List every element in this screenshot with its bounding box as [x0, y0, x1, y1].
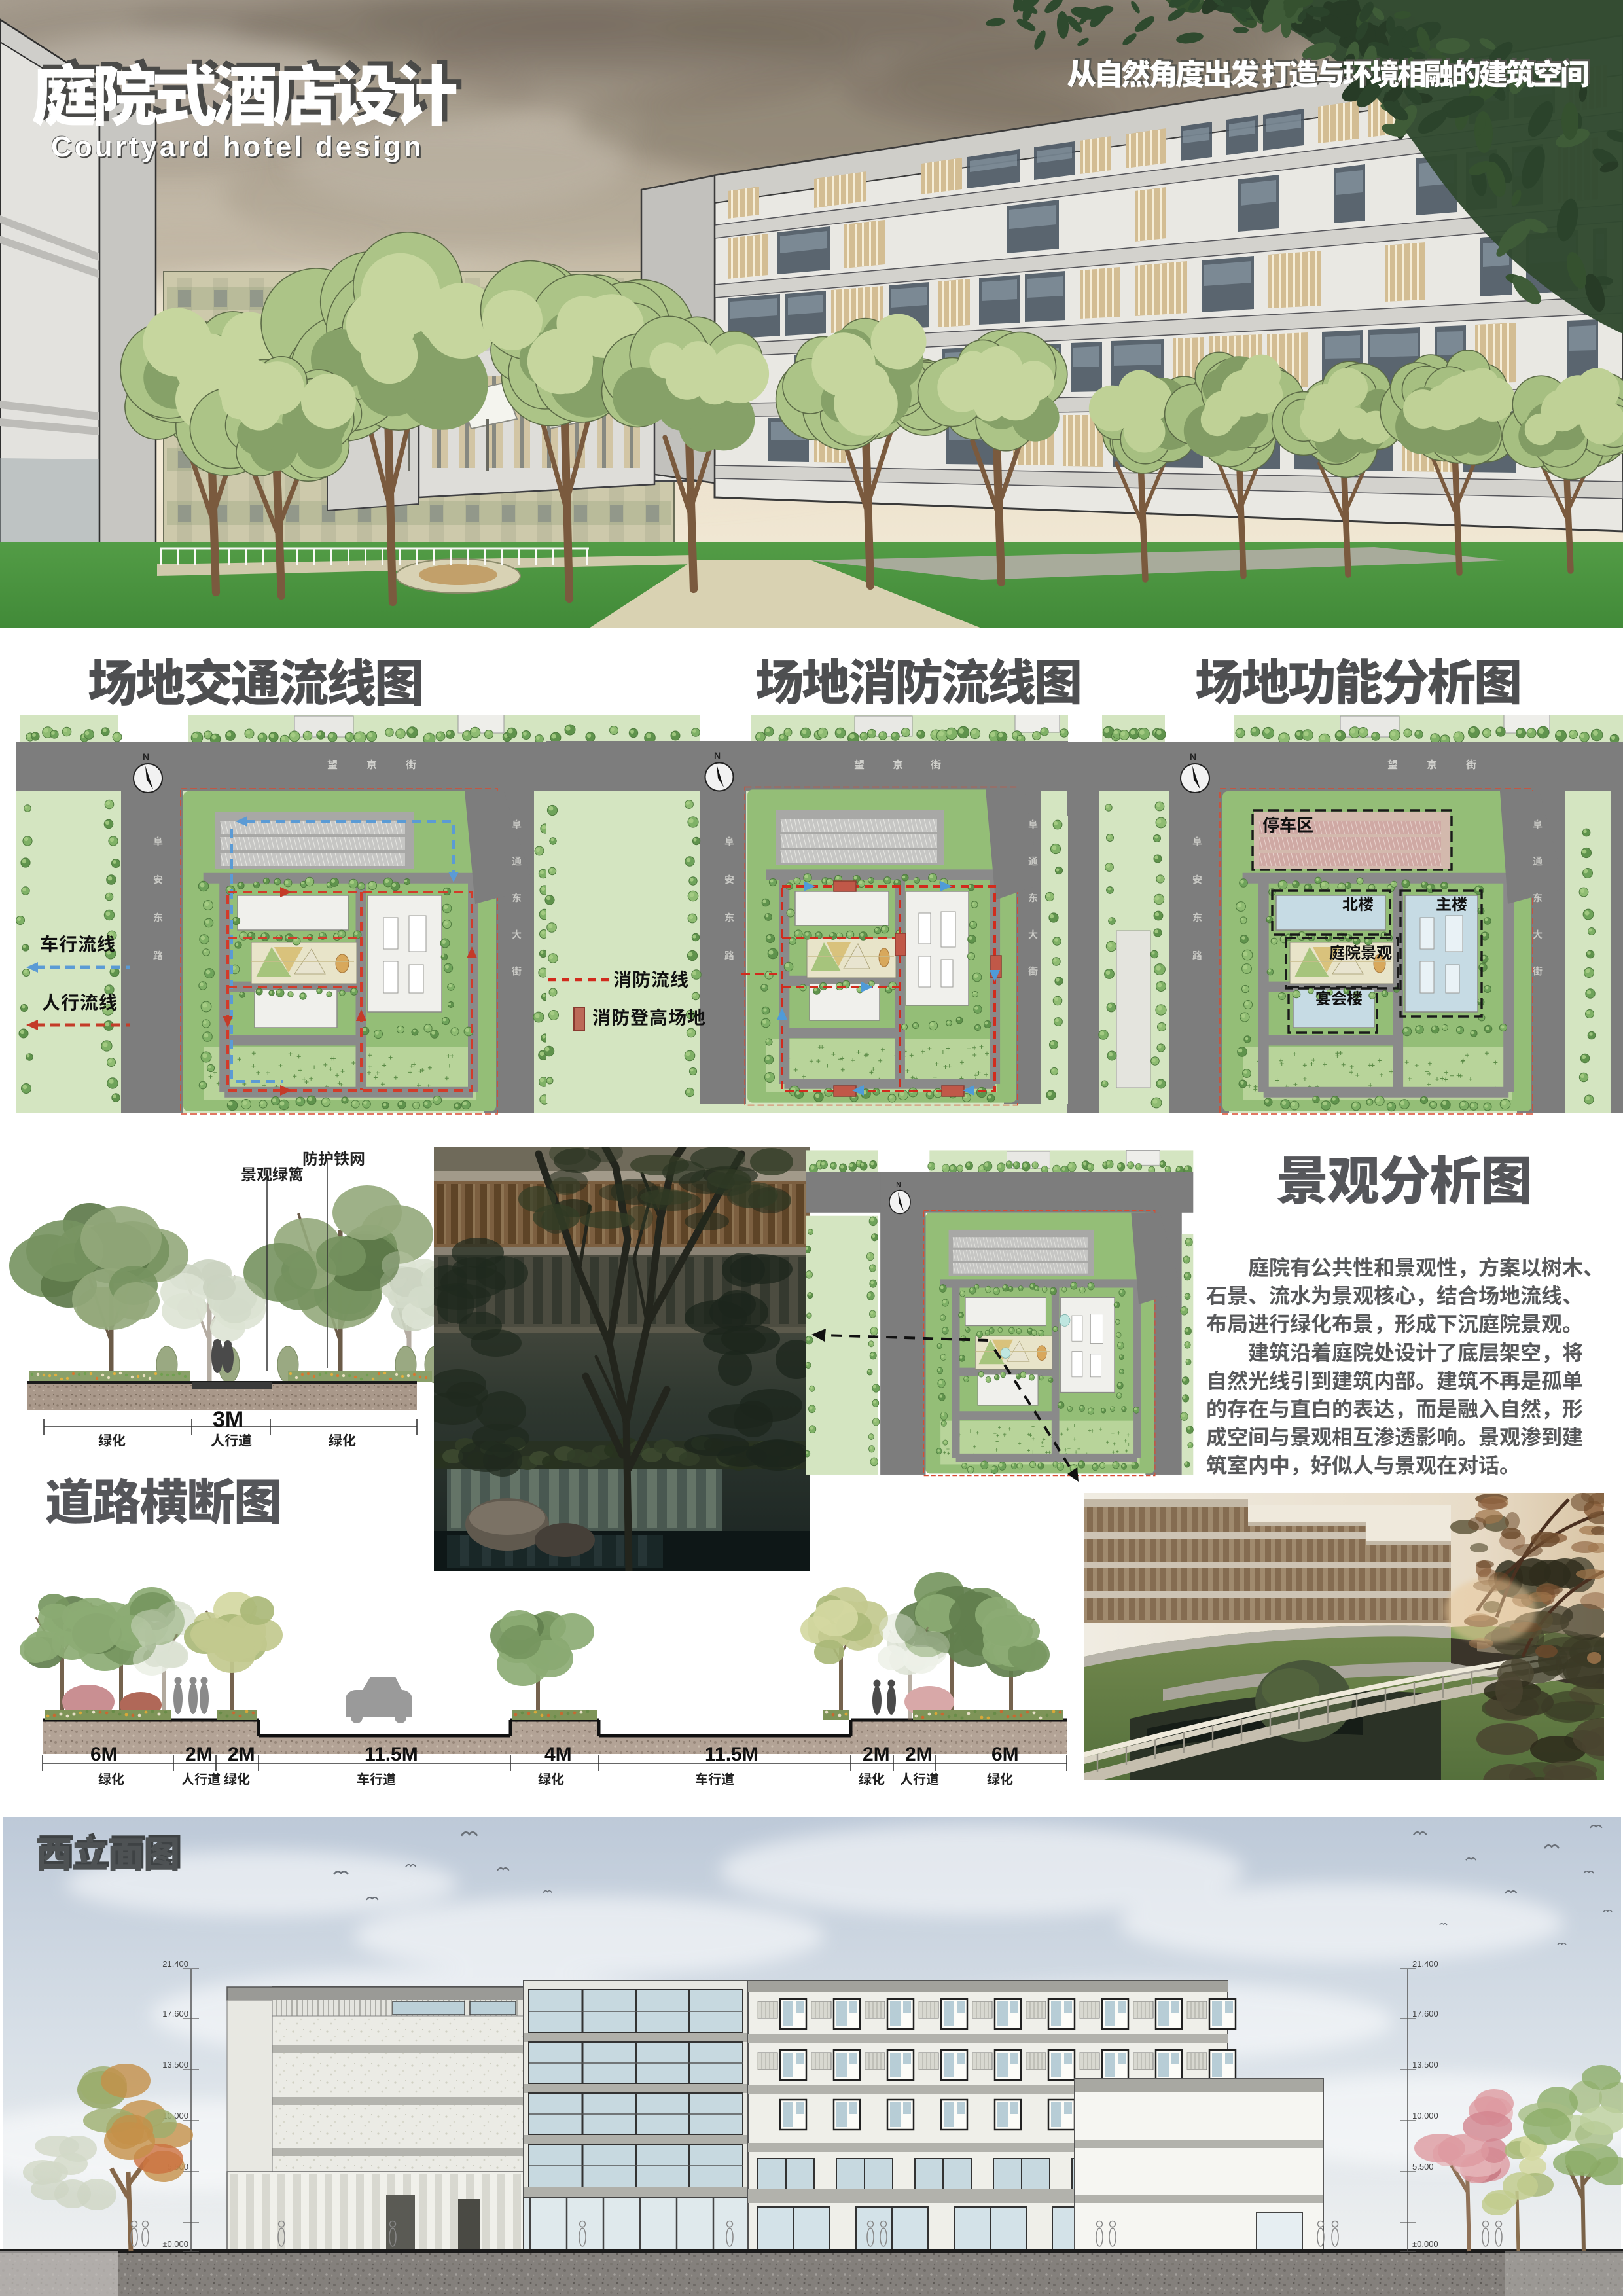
svg-text:10.000: 10.000 — [1412, 2111, 1438, 2121]
svg-text:13.500: 13.500 — [162, 2060, 188, 2070]
svg-text:N: N — [896, 1181, 901, 1189]
svg-text:21.400: 21.400 — [162, 1959, 188, 1969]
svg-text:17.600: 17.600 — [1412, 2009, 1438, 2018]
svg-text:±0.000: ±0.000 — [1412, 2239, 1438, 2249]
svg-text:17.600: 17.600 — [162, 2009, 188, 2018]
svg-text:13.500: 13.500 — [1412, 2060, 1438, 2070]
svg-text:5.500: 5.500 — [1412, 2162, 1434, 2172]
svg-text:21.400: 21.400 — [1412, 1959, 1438, 1969]
svg-text:±0.000: ±0.000 — [162, 2239, 188, 2249]
